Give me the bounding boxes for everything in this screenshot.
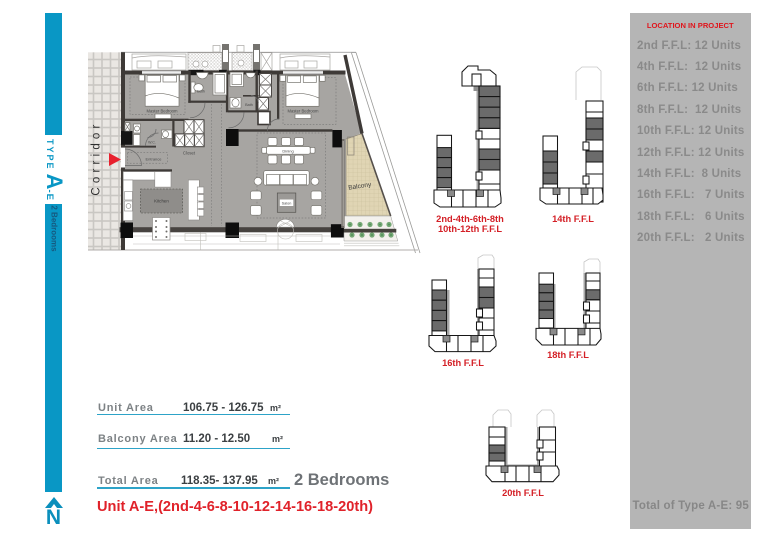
svg-text:16th F.F.L: 16th F.F.L xyxy=(442,358,484,368)
svg-text:Master Bedroom: Master Bedroom xyxy=(288,109,319,114)
svg-text:Kitchen: Kitchen xyxy=(154,199,169,204)
svg-text:Salon: Salon xyxy=(282,202,292,206)
svg-text:Bath: Bath xyxy=(245,103,253,107)
svg-text:Master Bedroom: Master Bedroom xyxy=(147,109,178,114)
svg-text:W.C.: W.C. xyxy=(148,141,156,145)
svg-text:18th F.F.L: 18th F.F.L xyxy=(547,350,589,360)
svg-text:Closet: Closet xyxy=(183,151,196,156)
svg-text:10th-12th F.F.L: 10th-12th F.F.L xyxy=(438,224,502,234)
svg-text:Entrance: Entrance xyxy=(145,156,162,161)
svg-text:2nd-4th-6th-8th: 2nd-4th-6th-8th xyxy=(436,214,504,224)
svg-text:Dining: Dining xyxy=(282,149,293,154)
svg-text:Bath: Bath xyxy=(197,90,205,94)
svg-text:Corridor: Corridor xyxy=(91,120,103,195)
svg-text:20th F.F.L: 20th F.F.L xyxy=(502,488,544,498)
svg-text:14th F.F.L: 14th F.F.L xyxy=(552,214,594,224)
